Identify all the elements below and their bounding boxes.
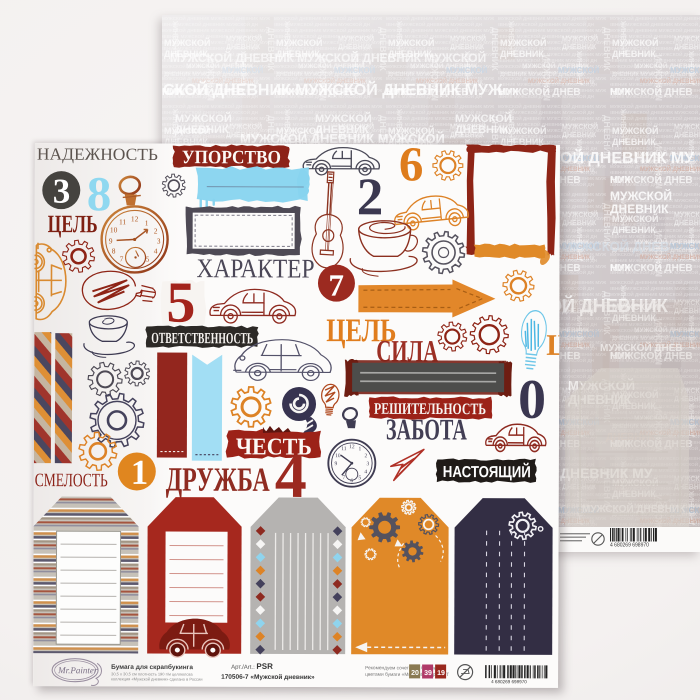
svg-text:4: 4 (154, 247, 158, 256)
svg-text:5: 5 (146, 254, 150, 263)
svg-text:11: 11 (119, 217, 127, 226)
svg-text:20: 20 (411, 670, 419, 677)
svg-text:НАСТОЯЩИЙ: НАСТОЯЩИЙ (443, 462, 531, 481)
svg-text:1: 1 (145, 218, 149, 227)
svg-text:6: 6 (350, 478, 353, 484)
svg-text:3: 3 (53, 172, 71, 211)
svg-text:ЦЕЛЬ: ЦЕЛЬ (48, 211, 98, 238)
svg-text:12: 12 (131, 214, 139, 223)
svg-text:4: 4 (364, 469, 367, 475)
svg-text:2: 2 (364, 453, 367, 459)
svg-text:1: 1 (358, 446, 361, 452)
svg-text:170506-7 «Мужской дневник»: 170506-7 «Мужской дневник» (221, 673, 315, 681)
svg-text:Ш: Ш (546, 329, 560, 362)
svg-text:6: 6 (399, 143, 424, 191)
svg-text:3: 3 (157, 237, 161, 246)
svg-text:11: 11 (341, 446, 347, 452)
svg-text:3: 3 (366, 461, 369, 467)
svg-text:коллекция «Мужской дневник» с: коллекция «Мужской дневник» сделано в Ро… (111, 676, 202, 681)
svg-text:7: 7 (342, 475, 345, 481)
svg-text:12: 12 (349, 444, 355, 450)
svg-text:2: 2 (154, 227, 158, 236)
svg-text:ОТВЕТСТВЕННОСТЬ: ОТВЕТСТВЕННОСТЬ (151, 330, 253, 347)
svg-text:ХАРАКТЕР: ХАРАКТЕР (196, 253, 314, 283)
svg-text:5: 5 (358, 475, 361, 481)
svg-text:Бумага для скрапбукинга: Бумага для скрапбукинга (111, 663, 193, 671)
svg-text:10: 10 (110, 225, 118, 234)
svg-text:7: 7 (328, 268, 344, 303)
svg-text:8: 8 (112, 246, 116, 255)
svg-text:19: 19 (437, 670, 445, 677)
svg-text:ДРУЖБА: ДРУЖБА (166, 462, 270, 499)
svg-text:0: 0 (518, 369, 546, 431)
svg-text:1: 1 (131, 453, 149, 492)
svg-text:5: 5 (166, 270, 195, 335)
svg-text:4 680269 698970: 4 680269 698970 (610, 543, 649, 549)
svg-text:9: 9 (334, 461, 337, 467)
svg-text:УПОРСТВО: УПОРСТВО (182, 147, 281, 168)
svg-text:СМЕЛОСТЬ: СМЕЛОСТЬ (35, 470, 108, 491)
svg-text:2: 2 (357, 168, 384, 226)
svg-text:7: 7 (120, 254, 124, 263)
svg-text:10: 10 (335, 453, 341, 459)
svg-text:9: 9 (109, 236, 113, 245)
svg-text:НАДЕЖНОСТЬ: НАДЕЖНОСТЬ (37, 145, 158, 164)
svg-text:Mr.Painter: Mr.Painter (57, 665, 98, 675)
svg-text:4 680269 698970: 4 680269 698970 (491, 679, 527, 684)
svg-text:39: 39 (424, 670, 432, 677)
svg-text:ЗАБОТА: ЗАБОТА (386, 413, 467, 446)
